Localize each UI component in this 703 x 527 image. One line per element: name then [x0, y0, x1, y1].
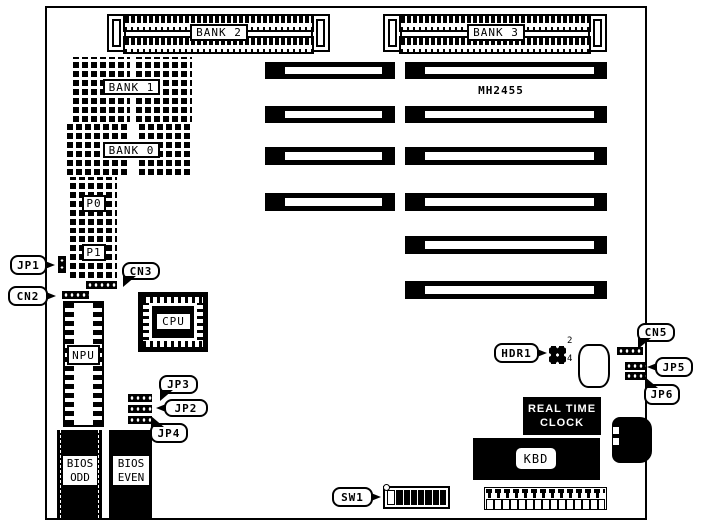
hdr1-pin2-number: 2: [567, 336, 572, 346]
expansion-slot: [405, 193, 607, 211]
jp3-callout: JP3: [159, 375, 198, 394]
bios-odd-line2: ODD: [63, 471, 97, 485]
din-notch: [612, 426, 620, 435]
power-connector-pins: [486, 489, 605, 498]
battery: [578, 344, 610, 388]
jp6-jumper: [625, 372, 646, 380]
sw1-callout: SW1: [332, 487, 373, 507]
p1-label: P1: [82, 244, 106, 261]
cn3-callout: CN3: [122, 262, 160, 280]
cpu-label: CPU: [156, 313, 191, 330]
jp5-callout: JP5: [655, 357, 693, 377]
motherboard-diagram: BANK 2 BANK 3 MH2455 BANK 1 BANK 0 P0 P1…: [0, 0, 703, 527]
power-connector-sockets: [486, 499, 605, 510]
jp4-jumper: [128, 416, 152, 424]
bios-even-line2: EVEN: [113, 471, 149, 485]
jp1-jumper: [58, 256, 66, 273]
hdr1-callout: HDR1: [494, 343, 539, 363]
simm-socket-bank2: BANK 2: [107, 13, 330, 53]
rtc-line2: CLOCK: [540, 416, 584, 430]
p0-label: P0: [82, 195, 106, 212]
cn3-connector: [86, 281, 117, 289]
bank2-label: BANK 2: [190, 24, 248, 41]
jp5-jumper: [625, 362, 646, 370]
expansion-slot: [265, 193, 395, 211]
cn5-callout: CN5: [637, 323, 675, 342]
expansion-slot: [405, 281, 607, 299]
bios-odd-line1: BIOS: [63, 457, 97, 471]
bios-odd-label: BIOS ODD: [62, 455, 98, 486]
expansion-slot: [405, 106, 607, 123]
cpu-socket: CPU: [138, 292, 208, 352]
jp4-callout: JP4: [150, 423, 188, 443]
keyboard-din-connector: [612, 417, 652, 463]
npu-label: NPU: [67, 345, 100, 365]
expansion-slot: [265, 106, 395, 123]
jp1-callout: JP1: [10, 255, 47, 275]
rtc-line1: REAL TIME: [528, 402, 596, 416]
simm-socket-bank3: BANK 3: [383, 13, 607, 53]
hdr1-pin4-number: 4: [567, 354, 572, 364]
bios-even-label: BIOS EVEN: [112, 455, 150, 486]
bank0-label: BANK 0: [103, 142, 160, 158]
din-notch: [612, 437, 620, 446]
bank1-label: BANK 1: [103, 79, 160, 95]
expansion-slot: [405, 147, 607, 165]
expansion-slot: [265, 62, 395, 79]
jp2-callout: JP2: [164, 399, 208, 417]
bank3-label: BANK 3: [467, 24, 525, 41]
kbd-chip: KBD: [473, 438, 600, 480]
mh2455-label: MH2455: [460, 84, 542, 97]
cn2-connector: [62, 291, 89, 299]
jp2-jumper: [128, 405, 152, 413]
hdr1-header: [549, 346, 566, 364]
expansion-slot: [405, 236, 607, 254]
expansion-slot: [265, 147, 395, 165]
jp3-jumper: [128, 394, 152, 402]
sw1-dip-switch: [383, 486, 450, 509]
power-connector: [484, 487, 607, 510]
cn2-callout: CN2: [8, 286, 48, 306]
expansion-slot: [405, 62, 607, 79]
bios-even-line1: BIOS: [113, 457, 149, 471]
real-time-clock-chip: REAL TIME CLOCK: [523, 397, 601, 435]
jp6-callout: JP6: [644, 384, 680, 405]
kbd-label: KBD: [516, 448, 556, 469]
